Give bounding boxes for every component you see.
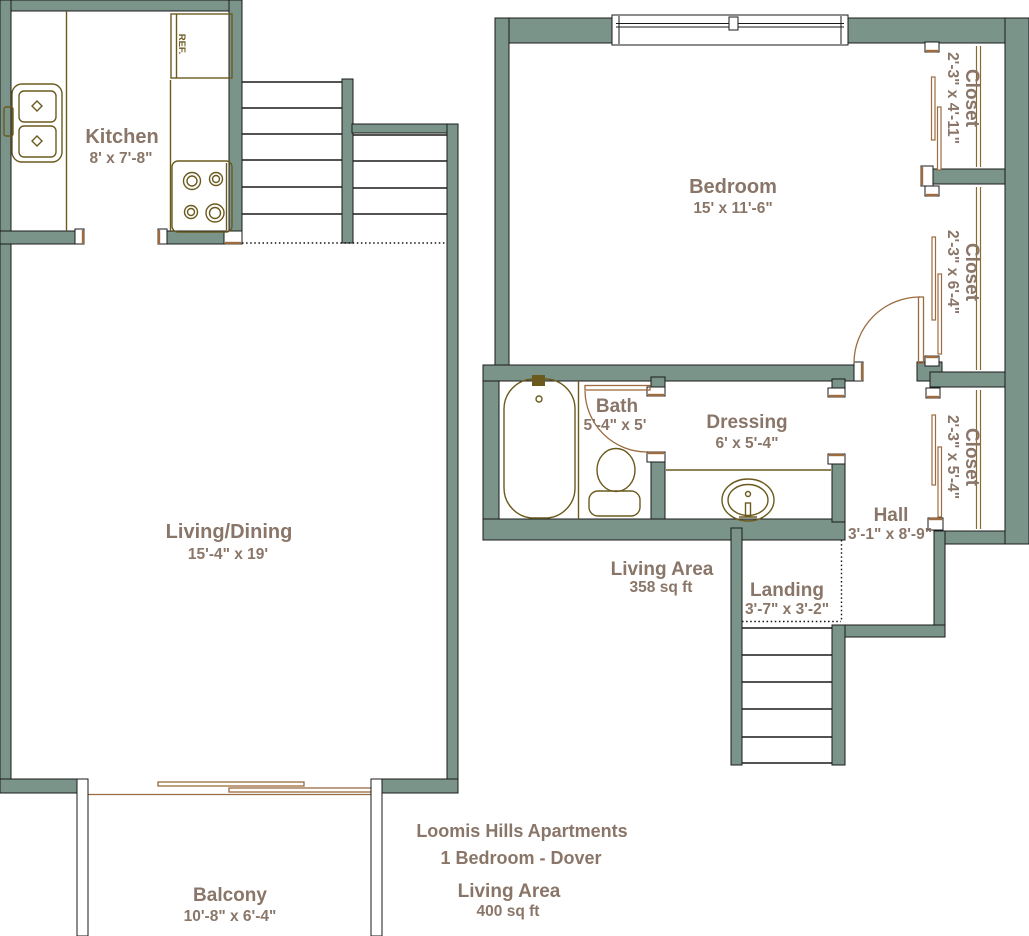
title-line1: Loomis Hills Apartments <box>416 821 627 841</box>
dressing-label: Dressing <box>706 412 787 433</box>
balcony-wall-left <box>77 779 88 936</box>
sliding-door <box>932 415 936 485</box>
sliding-door <box>938 274 942 354</box>
sliding-door <box>932 237 936 320</box>
hall-label: Hall <box>874 505 909 526</box>
wall-bath-bottom <box>483 519 845 540</box>
wall <box>0 0 11 793</box>
dressing-vanity <box>666 470 831 521</box>
kitchen-fixtures: REF. <box>4 11 232 232</box>
upper-living-area-label: Living Area <box>611 559 714 580</box>
vanity-sink-icon <box>722 479 774 521</box>
living-dining-label: Living/Dining <box>166 521 293 543</box>
wall-stairs-right <box>832 625 845 765</box>
kitchen-sink-icon <box>4 84 62 162</box>
balcony-dims: 10'-8" x 6'-4" <box>184 908 277 925</box>
title-area-value: 400 sq ft <box>477 903 540 920</box>
wall <box>229 0 242 231</box>
floor-plan: REF. <box>0 0 1029 936</box>
dressing-dims: 6' x 5'-4" <box>716 435 779 452</box>
closet-top-dims: 2'-3" x 4'-11" <box>944 52 961 144</box>
wall <box>0 0 238 11</box>
window-mullion <box>729 17 738 30</box>
walls <box>0 0 1029 793</box>
wall <box>352 124 458 133</box>
wall-bedroom-left <box>495 18 509 366</box>
refrigerator-label: REF. <box>176 34 187 55</box>
closet-top-label: Closet <box>961 69 982 128</box>
wall-bedroom-top-right <box>846 18 1029 43</box>
wall-right-outer <box>1005 18 1029 544</box>
kitchen-label: Kitchen <box>85 126 158 148</box>
closet-bottom-label: Closet <box>961 428 982 487</box>
title-area-label: Living Area <box>458 881 561 902</box>
wall <box>381 779 458 793</box>
balcony-label: Balcony <box>193 885 267 906</box>
bedroom-dims: 15' x 11'-6" <box>693 200 772 217</box>
closet-bottom-dims: 2'-3" x 5'-4" <box>944 415 961 499</box>
sliding-glass-door <box>229 788 373 792</box>
upper-living-area-value: 358 sq ft <box>630 579 693 596</box>
toilet-icon <box>597 449 635 492</box>
closet-middle-dims: 2'-3" x 6'-4" <box>944 230 961 314</box>
bath-label: Bath <box>596 396 638 417</box>
floor-plan-drawing: REF. <box>0 0 1029 936</box>
landing-dims: 3'-7" x 3'-2" <box>745 601 829 618</box>
bedroom-door <box>854 297 924 363</box>
bathtub-icon <box>504 375 575 518</box>
balcony-wall-right <box>371 779 382 936</box>
sliding-door <box>938 447 942 517</box>
hall-dims: 3'-1" x 8'-9" <box>848 526 932 543</box>
bath-dims: 5'-4" x 5' <box>584 417 647 434</box>
stairs-lower <box>742 540 842 763</box>
sliding-door <box>932 77 936 140</box>
title-line2: 1 Bedroom - Dover <box>440 848 601 868</box>
wall-bath-left <box>483 365 499 540</box>
wall-bedroom-top-left <box>495 18 615 43</box>
closet-middle-label: Closet <box>961 243 982 302</box>
wall-living-right <box>447 124 458 793</box>
stove-icon <box>172 161 232 232</box>
wall <box>166 231 226 244</box>
wall <box>0 779 79 793</box>
wall-hall-bottom <box>845 625 945 637</box>
wall <box>0 231 76 244</box>
wall-stair-mid <box>342 79 353 243</box>
sliding-glass-door <box>158 782 304 786</box>
kitchen-dims: 8' x 7'-8" <box>90 150 153 167</box>
landing-label: Landing <box>750 580 824 601</box>
wall-bath-right-lower <box>651 461 665 523</box>
living-dining-dims: 15'-4" x 19' <box>188 546 268 563</box>
sliding-door <box>938 107 942 170</box>
wall-dressing-right-lower <box>832 464 845 522</box>
bedroom-window <box>612 15 848 45</box>
bedroom-label: Bedroom <box>689 176 777 198</box>
wall-landing-left <box>731 528 742 765</box>
title-block: Loomis Hills Apartments 1 Bedroom - Dove… <box>416 821 627 920</box>
bath-sink-icon <box>589 491 640 516</box>
wall-hall-right <box>934 531 945 637</box>
